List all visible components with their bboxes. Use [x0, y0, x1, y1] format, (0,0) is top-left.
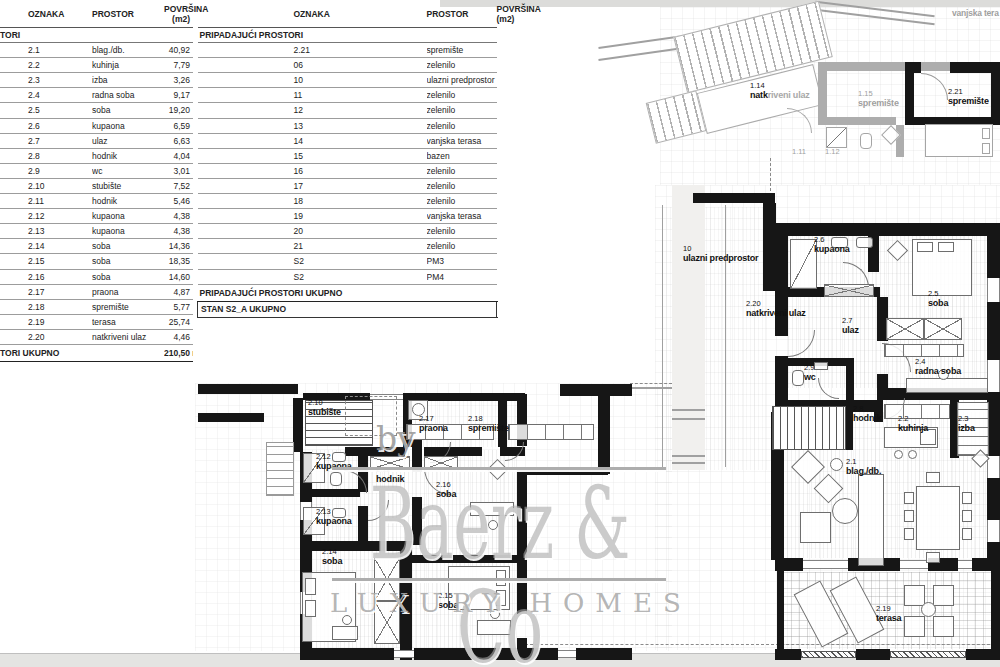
extension-line	[672, 455, 705, 457]
side-table	[830, 458, 843, 471]
wall	[991, 62, 1000, 125]
cell-oznaka: 2.13	[0, 224, 92, 239]
dining-chair	[962, 492, 972, 504]
table-row: 2.12kupaona4,38	[0, 209, 193, 224]
wall	[991, 571, 1000, 651]
areas-table-main: OZNAKA PROSTOR POVRŠINA (m2) TORI 2.1bla…	[0, 2, 193, 362]
wall	[300, 648, 394, 660]
table-row: 2.17praona4,87	[0, 284, 193, 299]
room-label-1-15: 1.15spremište	[858, 90, 899, 108]
stool	[894, 450, 903, 459]
cell-oznaka: 17	[198, 178, 427, 193]
cell-oznaka: 16	[198, 163, 427, 178]
cell-prostor: stubište	[92, 178, 164, 193]
table-row: 2.19terasa25,74	[0, 314, 193, 329]
room-label-2-7: 2.7ulaz	[842, 317, 859, 335]
room-label-2-6: 2.6kupaona	[814, 236, 850, 254]
section-title: PRIPADAJUĆI PROSTORI	[198, 28, 497, 43]
pillow	[917, 242, 933, 252]
room-label-2-21: 2.21spremište	[948, 88, 989, 106]
areas-table-appurtenant: OZNAKA PROSTOR POVRŠINA (m2) PRIPADAJUĆI…	[197, 2, 497, 318]
toilet	[860, 133, 872, 149]
wall	[693, 193, 775, 203]
toilet	[792, 370, 804, 386]
cell-povrsina: 7,52	[164, 178, 193, 193]
cell-prostor: natkriveni ulaz	[92, 329, 164, 344]
cell-prostor: izba	[92, 73, 164, 88]
room-label-2-15: 2.15soba	[438, 592, 458, 610]
col-oznaka: OZNAKA	[0, 2, 92, 28]
window	[900, 560, 928, 569]
cell-oznaka: 2.6	[0, 118, 92, 133]
cell-prostor: soba	[92, 103, 164, 118]
table-row: 12zelenilo3,59	[198, 103, 497, 118]
wall	[777, 571, 784, 651]
label-bold-part: natk	[750, 90, 768, 100]
room-label-2-20: 2.20natkriveni ulaz	[746, 300, 806, 318]
cell-prostor: zelenilo	[427, 88, 497, 103]
wall	[517, 470, 527, 614]
table-total-row: PRIPADAJUĆI PROSTORI UKUPNO 350,93 m²	[198, 284, 497, 301]
desk-chair	[342, 615, 352, 625]
table-section-row: TORI	[0, 28, 193, 43]
total-label: PRIPADAJUĆI PROSTORI UKUPNO	[198, 284, 497, 301]
table-header-row: OZNAKA PROSTOR POVRŠINA (m2)	[198, 2, 497, 28]
cell-oznaka: 06	[198, 58, 427, 73]
terrace-chair	[933, 585, 954, 606]
table-row: 15bazen27,30	[198, 148, 497, 163]
cell-prostor: wc	[92, 163, 164, 178]
cell-oznaka: 2.11	[0, 194, 92, 209]
wall	[527, 467, 608, 475]
wall	[775, 223, 1000, 236]
table-row: 16zelenilo83,19	[198, 163, 497, 178]
floorplan-sheet: OZNAKA PROSTOR POVRŠINA (m2) TORI 2.1bla…	[0, 0, 1000, 667]
cell-prostor: soba	[92, 254, 164, 269]
wall	[818, 117, 896, 125]
cell-oznaka: 2.9	[0, 163, 92, 178]
terrace-chair	[904, 616, 925, 637]
cell-povrsina: 3,26	[164, 73, 193, 88]
cell-prostor: hodnik	[92, 148, 164, 163]
cell-prostor: blag./db.	[92, 43, 164, 58]
pillow	[496, 590, 506, 606]
col-oznaka: OZNAKA	[198, 2, 427, 28]
table-row: 2.7ulaz6,63	[0, 133, 193, 148]
table-row: 2.15soba18,35	[0, 254, 193, 269]
extension-line	[672, 418, 705, 420]
pillow	[305, 578, 316, 595]
table-row: 18zelenilo8,95	[198, 194, 497, 209]
room-label-2-13: 2.13kupaona	[316, 508, 352, 526]
wall	[775, 236, 788, 336]
dining-chair	[904, 492, 914, 504]
wall	[358, 506, 368, 542]
room-label-2-4: 2.4radna soba	[915, 358, 961, 376]
cell-oznaka: 13	[198, 118, 427, 133]
cell-prostor: bazen	[427, 148, 497, 163]
cell-povrsina: 19,20	[164, 103, 193, 118]
table-row: 20zelenilo11,37	[198, 224, 497, 239]
window	[803, 560, 848, 569]
room-label-2-12: 2.12kupaona	[316, 453, 352, 471]
table-row: 2.10stubište7,52	[0, 178, 193, 193]
table-row: 2.8hodnik4,04	[0, 148, 193, 163]
wardrobe	[374, 601, 400, 644]
cell-oznaka: 2.12	[0, 209, 92, 224]
window	[987, 360, 1000, 392]
pillow	[982, 128, 990, 139]
sofa	[858, 474, 884, 566]
cell-oznaka: 15	[198, 148, 427, 163]
wardrobe	[924, 318, 962, 340]
cell-oznaka: 2.5	[0, 103, 92, 118]
cell-povrsina: 14,60	[164, 269, 193, 284]
cell-oznaka: 18	[198, 194, 427, 209]
cell-prostor: terasa	[92, 314, 164, 329]
table-row: 06zelenilo3,40	[198, 58, 497, 73]
pillow	[496, 570, 506, 586]
window	[987, 456, 1000, 478]
room-label-2-16: 2.16soba	[436, 481, 456, 499]
cell-prostor: PM4	[427, 269, 497, 284]
window	[394, 650, 414, 658]
table-row: 21zelenilo6,98	[198, 239, 497, 254]
wall	[905, 62, 914, 125]
table-row: 2.1blag./db.40,92	[0, 43, 193, 58]
room-label-10: 10ulazni predprostor	[683, 245, 758, 263]
cell-prostor: soba	[92, 269, 164, 284]
table-row: 2.5soba19,20	[0, 103, 193, 118]
cell-prostor: hodnik	[92, 194, 164, 209]
wardrobe	[886, 318, 924, 340]
cell-oznaka: S2	[198, 254, 427, 269]
col-prostor: PROSTOR	[427, 2, 497, 28]
cell-povrsina: 6,59	[164, 118, 193, 133]
total-value: 210,50 m²	[164, 344, 193, 361]
cell-prostor: zelenilo	[427, 178, 497, 193]
section-dash-line	[770, 158, 771, 196]
room-label-2-5: 2.5soba	[928, 290, 948, 308]
wall	[412, 555, 517, 563]
table-row: 14vanjska terasa53,85	[198, 133, 497, 148]
cell-oznaka: 20	[198, 224, 427, 239]
cell-prostor: zelenilo	[427, 224, 497, 239]
paper-band	[672, 185, 705, 470]
table-row: 2.6kupaona6,59	[0, 118, 193, 133]
cell-prostor: kupaona	[92, 118, 164, 133]
room-label-2-11: 2.11hodnik	[376, 466, 404, 484]
parapet-wall	[801, 651, 856, 658]
col-prostor: PROSTOR	[92, 2, 164, 28]
room-label-2-2: 2.2kuhinja	[898, 415, 928, 433]
cell-prostor: ulaz	[92, 133, 164, 148]
cell-povrsina: 40,92	[164, 43, 193, 58]
room-label-1-11: 1.11	[792, 148, 806, 156]
wc-sink	[814, 362, 828, 370]
wall	[966, 649, 1000, 660]
wall	[845, 408, 853, 450]
room-label-2-14: 2.14soba	[322, 548, 342, 566]
table-row: S2PM415,20	[198, 269, 497, 284]
cell-oznaka: 2.14	[0, 239, 92, 254]
room-label-2-18: 2.18spremište	[468, 415, 509, 433]
window	[558, 650, 576, 658]
room-label-2-17: 2.17praona	[419, 415, 448, 433]
desk-chair	[488, 520, 498, 530]
terrace-chair	[904, 585, 925, 606]
wardrobe	[424, 456, 458, 470]
table-row: 2.14soba14,36	[0, 239, 193, 254]
room-label-2-3: 2.3izba	[958, 415, 975, 433]
dining-chair	[926, 472, 940, 483]
wall	[775, 649, 801, 660]
toilet	[330, 472, 342, 486]
terrace-table	[921, 602, 936, 617]
porch-edge-line	[662, 205, 663, 467]
cell-povrsina: 4,38	[164, 224, 193, 239]
cell-prostor: kupaona	[92, 209, 164, 224]
cell-oznaka: 2.2	[0, 58, 92, 73]
cell-povrsina: 4,04	[164, 148, 193, 163]
table-row: 2.9wc3,01	[0, 163, 193, 178]
cell-prostor: zelenilo	[427, 239, 497, 254]
cell-oznaka: S2	[198, 269, 427, 284]
cell-prostor: vanjska terasa	[427, 133, 497, 148]
dining-chair	[904, 510, 914, 522]
wall	[414, 648, 558, 660]
desk	[470, 502, 514, 516]
cell-povrsina: 4,87	[164, 284, 193, 299]
label-gray-part: riveni ulaz	[768, 90, 810, 100]
cell-prostor: vanjska terasa	[427, 209, 497, 224]
cell-prostor: zelenilo	[427, 163, 497, 178]
cell-prostor: kuhinja	[92, 58, 164, 73]
wall	[400, 551, 412, 660]
grand-total-label: STAN S2_A UKUPNO	[198, 301, 497, 317]
closet	[824, 284, 874, 297]
table-row: 2.20natkriveni ulaz4,46	[0, 329, 193, 344]
cell-povrsina: 25,74	[164, 314, 193, 329]
cell-oznaka: 2.1	[0, 43, 92, 58]
washing-machine	[826, 127, 847, 148]
dining-chair	[962, 528, 972, 540]
wall	[300, 541, 412, 551]
wall	[576, 648, 632, 660]
cell-oznaka: 2.15	[0, 254, 92, 269]
pillow	[982, 143, 990, 154]
table-row: 17zelenilo30,59	[198, 178, 497, 193]
wall	[198, 384, 298, 394]
wall	[198, 413, 264, 422]
cell-oznaka: 2.17	[0, 284, 92, 299]
dining-table	[916, 486, 960, 550]
room-label-2-9: 2.9wc	[804, 364, 816, 382]
cell-povrsina: 3,01	[164, 163, 193, 178]
boundary-dash	[520, 644, 1000, 645]
window	[987, 278, 1000, 302]
table-grand-total-row: STAN S2_A UKUPNO 561,43 m²	[198, 301, 497, 317]
desk	[332, 626, 358, 640]
table-row: 2.4radna soba9,17	[0, 88, 193, 103]
wall	[856, 649, 890, 660]
wall	[846, 358, 854, 402]
wall	[345, 447, 405, 456]
cell-povrsina: 5,77	[164, 299, 193, 314]
table-row: 2.2kuhinja7,79	[0, 58, 193, 73]
dining-chair	[962, 510, 972, 522]
cell-oznaka: 2.7	[0, 133, 92, 148]
cell-oznaka: 2.19	[0, 314, 92, 329]
room-label-2-1: 2.1blag./db.	[846, 458, 881, 476]
ottoman	[800, 512, 831, 543]
total-label: TORI UKUPNO	[0, 344, 164, 361]
cell-prostor: kupaona	[92, 224, 164, 239]
wall	[987, 478, 1000, 520]
table-row: 2.13kupaona4,38	[0, 224, 193, 239]
wall	[412, 497, 422, 545]
cell-oznaka: 2.21	[198, 43, 427, 58]
cell-prostor: zelenilo	[427, 103, 497, 118]
cell-prostor: zelenilo	[427, 118, 497, 133]
terrace-chair	[933, 616, 954, 637]
wall	[987, 236, 1000, 278]
dining-chair	[926, 552, 940, 563]
wall	[987, 302, 1000, 360]
extension-line	[672, 409, 705, 411]
cell-povrsina: 4,46	[164, 329, 193, 344]
wall	[293, 398, 303, 452]
window	[987, 520, 1000, 542]
counter	[508, 424, 594, 440]
coffee-table	[832, 498, 858, 524]
porch-steps	[266, 442, 294, 496]
table-row: 2.21spremište6,48	[198, 43, 497, 58]
staircase-dashed-outline	[345, 396, 397, 436]
table-row: 2.3izba3,26	[0, 73, 193, 88]
cell-povrsina: 6,63	[164, 133, 193, 148]
stool	[908, 450, 917, 459]
table-header-row: OZNAKA PROSTOR POVRŠINA (m2)	[0, 2, 193, 28]
room-label-2-10: 2.10stubište	[308, 399, 341, 417]
col-povrsina: POVRŠINA (m2)	[164, 2, 193, 28]
desk-chair	[490, 609, 500, 619]
cell-oznaka: 19	[198, 209, 427, 224]
cell-prostor: zelenilo	[427, 194, 497, 209]
wall	[412, 440, 422, 472]
cell-povrsina: 7,79	[164, 58, 193, 73]
wall	[972, 558, 1000, 571]
cell-povrsina: 14,36	[164, 239, 193, 254]
pillow	[938, 242, 954, 252]
cell-oznaka: 2.10	[0, 178, 92, 193]
room-label-vanjska-terasa-ghost: vanjska tera	[952, 8, 999, 18]
pillow	[305, 600, 316, 617]
wall	[818, 71, 827, 121]
wardrobe	[374, 558, 400, 601]
cell-prostor: ulazni predprostor	[427, 73, 497, 88]
table-row: 2.16soba14,60	[0, 269, 193, 284]
cell-oznaka: 21	[198, 239, 427, 254]
table-total-row: TORI UKUPNO 210,50 m²	[0, 344, 193, 361]
cell-prostor: zelenilo	[427, 58, 497, 73]
cell-povrsina: 4,38	[164, 209, 193, 224]
cell-prostor: praona	[92, 284, 164, 299]
cell-oznaka: 11	[198, 88, 427, 103]
table-row: S2PM315,01	[198, 254, 497, 269]
window	[958, 560, 972, 569]
extension-dash	[630, 383, 672, 384]
wall	[896, 125, 904, 157]
cell-oznaka: 10	[198, 73, 427, 88]
wall	[560, 384, 632, 396]
cell-oznaka: 2.16	[0, 269, 92, 284]
table-row: 2.18spremište5,77	[0, 299, 193, 314]
cell-oznaka: 14	[198, 133, 427, 148]
room-label-1-14: 1.14 natkriveni ulaz	[750, 82, 810, 100]
section-title: TORI	[0, 28, 193, 43]
table-row: 10ulazni predprostor16,27	[198, 73, 497, 88]
table-section-row: PRIPADAJUĆI PROSTORI	[198, 28, 497, 43]
room-label-2-19: 2.19terasa	[876, 605, 901, 623]
staircase-hodnik	[772, 406, 846, 450]
cell-oznaka: 2.18	[0, 299, 92, 314]
cell-povrsina: 9,17	[164, 88, 193, 103]
cell-oznaka: 2.3	[0, 73, 92, 88]
cell-prostor: spremište	[92, 299, 164, 314]
wall	[598, 396, 610, 474]
cell-oznaka: 12	[198, 103, 427, 118]
cell-povrsina: 5,46	[164, 194, 193, 209]
cell-oznaka: 2.8	[0, 148, 92, 163]
extension-line	[672, 462, 705, 464]
cell-prostor: spremište	[427, 43, 497, 58]
table-row: 2.11hodnik5,46	[0, 194, 193, 209]
table-row: 13zelenilo37,24	[198, 118, 497, 133]
shower	[790, 239, 817, 289]
desk	[477, 620, 511, 635]
table-row: 11zelenilo17,48	[198, 88, 497, 103]
room-label-1-12: 1.12	[825, 148, 840, 156]
cell-povrsina: 18,35	[164, 254, 193, 269]
dining-chair	[904, 528, 914, 540]
parapet-wall	[890, 651, 966, 658]
cell-prostor: soba	[92, 239, 164, 254]
dresser	[884, 344, 964, 357]
room-label-2-8: 2.8hodnik	[853, 405, 881, 423]
table-row: 19vanjska terasa14,03	[198, 209, 497, 224]
cell-prostor: radna soba	[92, 88, 164, 103]
sink	[856, 237, 873, 248]
cell-oznaka: 2.20	[0, 329, 92, 344]
desk	[906, 378, 988, 393]
wall	[775, 558, 803, 571]
cell-oznaka: 2.4	[0, 88, 92, 103]
cell-prostor: PM3	[427, 254, 497, 269]
